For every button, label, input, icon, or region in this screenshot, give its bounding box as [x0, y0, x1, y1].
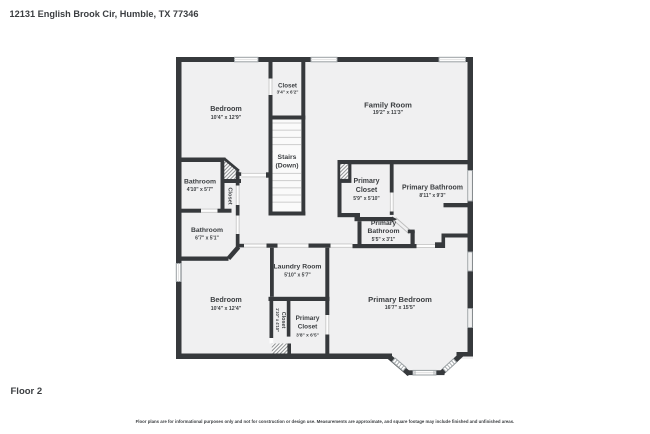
svg-text:5'5" x 3'1": 5'5" x 3'1" — [372, 237, 396, 243]
svg-text:Floor 2: Floor 2 — [11, 386, 43, 397]
svg-text:6'7" x 5'1": 6'7" x 5'1" — [195, 236, 219, 242]
svg-text:5'10" x 5'7": 5'10" x 5'7" — [284, 273, 311, 279]
svg-text:3'8" x 6'5": 3'8" x 6'5" — [296, 333, 319, 339]
svg-text:(Down): (Down) — [275, 162, 298, 169]
svg-text:10'4" x 12'4": 10'4" x 12'4" — [211, 306, 242, 312]
svg-text:5'9" x 5'10": 5'9" x 5'10" — [353, 196, 380, 202]
svg-text:16'7" x 15'5": 16'7" x 15'5" — [385, 305, 416, 311]
svg-text:Primary Bedroom: Primary Bedroom — [368, 295, 432, 304]
svg-text:3'4" x 6'2": 3'4" x 6'2" — [277, 90, 299, 95]
svg-text:Bathroom: Bathroom — [191, 227, 223, 234]
svg-text:1'10" x 4'10": 1'10" x 4'10" — [275, 308, 280, 332]
svg-text:Stairs: Stairs — [278, 154, 297, 161]
svg-text:Primary: Primary — [371, 220, 397, 227]
svg-text:10'4" x 12'9": 10'4" x 12'9" — [211, 115, 242, 121]
svg-text:Bedroom: Bedroom — [210, 295, 242, 304]
svg-text:Closet: Closet — [356, 187, 378, 194]
svg-text:Bathroom: Bathroom — [367, 228, 399, 235]
svg-text:Closet: Closet — [227, 187, 233, 204]
svg-text:Primary Bathroom: Primary Bathroom — [402, 185, 463, 192]
svg-text:Bedroom: Bedroom — [210, 104, 242, 113]
svg-text:19'2" x 11'3": 19'2" x 11'3" — [373, 110, 404, 116]
svg-text:4'10" x 5'7": 4'10" x 5'7" — [187, 187, 214, 193]
svg-text:Bathroom: Bathroom — [184, 179, 216, 186]
svg-text:Floor plans are for informatio: Floor plans are for informational purpos… — [136, 419, 515, 424]
svg-text:Laundry Room: Laundry Room — [274, 264, 322, 271]
svg-text:Family Room: Family Room — [364, 101, 412, 110]
svg-text:8'11" x 9'3": 8'11" x 9'3" — [419, 193, 446, 199]
svg-text:Closet: Closet — [278, 83, 297, 90]
svg-text:12131 English Brook Cir, Humbl: 12131 English Brook Cir, Humble, TX 7734… — [10, 9, 199, 19]
svg-text:Primary: Primary — [296, 315, 320, 322]
svg-text:Closet: Closet — [280, 312, 286, 329]
svg-text:Primary: Primary — [353, 178, 379, 185]
svg-text:Closet: Closet — [298, 324, 318, 331]
